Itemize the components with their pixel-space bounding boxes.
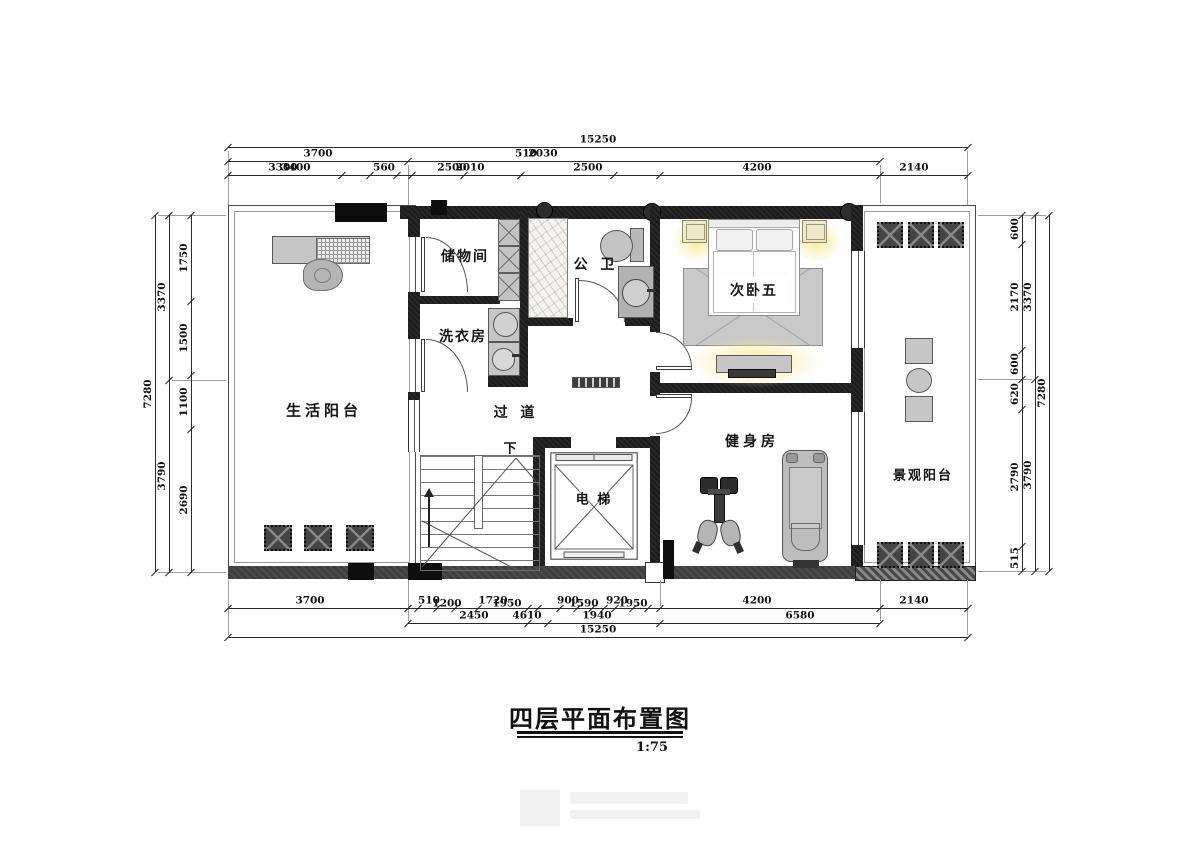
room-label-bedroom5: 次卧五 (720, 277, 788, 303)
wall-segment (650, 372, 660, 396)
treadmill-roller (813, 453, 825, 463)
dimension-line (228, 161, 880, 162)
dimension-line (228, 147, 968, 148)
wall-segment (408, 392, 420, 400)
wall-segment (400, 206, 860, 219)
dimension-label: 4200 (742, 596, 771, 607)
plant (264, 525, 292, 551)
gym-machine-foot (692, 541, 703, 554)
corridor-window (408, 400, 420, 452)
dimension-label: 1940 (582, 611, 611, 622)
dimension-line (1049, 215, 1050, 571)
tea-table (906, 368, 932, 393)
headboard (709, 220, 799, 228)
dimension-label: 3790 (1023, 460, 1034, 489)
elevator-shaft-wall (545, 437, 571, 448)
bedroom-window (851, 251, 865, 348)
dimension-label: 2010 (455, 163, 484, 174)
gym-machine (694, 474, 742, 554)
pillow (716, 229, 753, 251)
plant (908, 222, 934, 248)
extension-line (967, 151, 968, 205)
dimension-label: 1590 (569, 599, 598, 610)
treadmill-base (793, 560, 819, 568)
wardrobe-cabinet (498, 273, 520, 301)
laundry-sink-bowl (492, 348, 515, 371)
dimension-line (228, 637, 968, 638)
wall-segment (528, 318, 573, 326)
column-round (536, 202, 553, 219)
dimension-label: 1750 (179, 243, 190, 272)
room-label-bathroom: 公 卫 (574, 254, 619, 274)
faucet-icon (647, 289, 655, 292)
floor-grille (572, 377, 620, 388)
room-label-elevator: 电 梯 (576, 489, 613, 508)
door-arc (426, 339, 468, 392)
title-underline-2 (517, 736, 683, 738)
plant (938, 542, 964, 568)
dimension-label: 3400 (281, 163, 310, 174)
treadmill-belt (789, 467, 822, 529)
dimension-label: 2170 (1010, 282, 1021, 311)
stool (905, 338, 933, 364)
dimension-label: 3700 (295, 596, 324, 607)
dimension-tick (964, 144, 972, 152)
dimension-label: 7280 (1037, 378, 1048, 407)
dimension-tick (1045, 568, 1053, 576)
bottom-wall (228, 566, 855, 579)
wall-segment (488, 376, 523, 387)
floor-plan-sheet: 四层平面布置图 1:75 生活阳台储物间洗衣房公 卫次卧五过 道下电 梯健身房景… (0, 0, 1200, 842)
stair-direction-arrow (428, 495, 430, 547)
extension-line (880, 580, 881, 621)
room-label-storage: 储物间 (441, 246, 489, 266)
elevator-lobby-opening (645, 562, 665, 583)
column-square (431, 200, 447, 215)
room-label-laundry: 洗衣房 (439, 326, 487, 346)
extension-line (408, 165, 409, 205)
stool (905, 396, 933, 422)
dimension-label: 600 (1010, 353, 1021, 375)
dimension-label: 2790 (1010, 462, 1021, 491)
gym-window (851, 412, 865, 545)
washer-drum (493, 312, 518, 337)
dimension-label: 1950 (618, 599, 647, 610)
room-label-living-balcony: 生活阳台 (286, 400, 362, 421)
dimension-label: 560 (373, 163, 395, 174)
dimension-label: 7280 (143, 379, 154, 408)
dimension-label: 2030 (528, 149, 557, 160)
pillow (756, 229, 793, 251)
door-leaf (421, 339, 425, 392)
dimension-label: 3700 (303, 149, 332, 160)
vanity-sink-bowl (622, 279, 650, 307)
extension-line (408, 580, 409, 621)
dimension-label: 2140 (899, 596, 928, 607)
stair-break-lines (420, 455, 540, 571)
dimension-label: 4200 (742, 163, 771, 174)
dimension-label: 15250 (580, 625, 617, 636)
dimension-label: 1500 (179, 323, 190, 352)
nightstand-inner (686, 224, 705, 240)
wall-segment (408, 292, 420, 339)
wall-pier (348, 563, 374, 580)
extension-line (172, 380, 226, 381)
wall-pier (663, 540, 674, 579)
tv-screen (728, 369, 776, 378)
gym-machine-foot (733, 541, 744, 554)
dimension-label: 4610 (512, 611, 541, 622)
faucet-icon (512, 354, 520, 357)
dimension-label: 3370 (1023, 282, 1034, 311)
dimension-line (191, 215, 192, 572)
gym-machine-spine (714, 494, 725, 523)
elevator-shaft-wall (616, 437, 650, 448)
dimension-label: 1200 (432, 599, 461, 610)
room-label-view-balcony: 景观阳台 (893, 465, 953, 484)
wall-segment (520, 206, 528, 387)
stair-arrow-head (424, 488, 434, 497)
dimension-label: 2690 (179, 485, 190, 514)
dimension-tick (964, 605, 972, 613)
wall-segment (420, 296, 500, 304)
dimension-label: 600 (1010, 218, 1021, 240)
room-label-gym: 健身房 (725, 431, 779, 451)
extension-line (880, 165, 881, 203)
door-leaf (421, 237, 425, 292)
dimension-label: 1950 (492, 599, 521, 610)
stair-down-label: 下 (503, 438, 516, 457)
treadmill-roller (786, 453, 798, 463)
nightstand-inner (806, 224, 825, 240)
plant (346, 525, 374, 551)
wall-segment (851, 348, 863, 412)
dimension-label: 620 (1010, 383, 1021, 405)
wall-segment (408, 206, 420, 237)
plant (877, 222, 903, 248)
wardrobe-cabinet (498, 219, 520, 246)
dimension-line (169, 215, 170, 572)
plant (304, 525, 332, 551)
plant (908, 542, 934, 568)
balcony-bottom-wall (855, 566, 976, 581)
watermark (570, 810, 700, 819)
wall-segment (851, 205, 863, 251)
dimension-label: 2140 (899, 163, 928, 174)
dimension-label: 3790 (157, 461, 168, 490)
wall-pier (335, 203, 387, 222)
scale-label: 1:75 (636, 740, 668, 755)
balcony-plant-pot-inner (314, 268, 331, 283)
dimension-label: 6580 (785, 611, 814, 622)
title-underline (517, 731, 683, 734)
wall-segment (650, 436, 660, 578)
treadmill-console (791, 523, 820, 551)
plant (877, 542, 903, 568)
dimension-label: 515 (1010, 547, 1021, 569)
room-label-corridor: 过 道 (494, 402, 539, 422)
plant (938, 222, 964, 248)
door-arc (656, 398, 692, 434)
dimension-tick (876, 620, 884, 628)
watermark (520, 790, 560, 826)
dimension-tick (964, 172, 972, 180)
dimension-line (155, 215, 156, 572)
treadmill (782, 450, 828, 562)
dimension-label: 1100 (179, 387, 190, 416)
extension-line (660, 580, 661, 606)
dimension-line (408, 623, 880, 624)
shower-area (528, 218, 568, 318)
dimension-label: 3370 (157, 282, 168, 311)
dimension-label: 2500 (573, 163, 602, 174)
dimension-tick (964, 634, 972, 642)
watermark (570, 792, 688, 804)
extension-line (978, 379, 1032, 380)
drawing-title: 四层平面布置图 (509, 699, 691, 734)
dimension-label: 2450 (459, 611, 488, 622)
dimension-label: 15250 (580, 135, 617, 146)
dimension-line (1022, 215, 1023, 571)
wardrobe-cabinet (498, 246, 520, 273)
